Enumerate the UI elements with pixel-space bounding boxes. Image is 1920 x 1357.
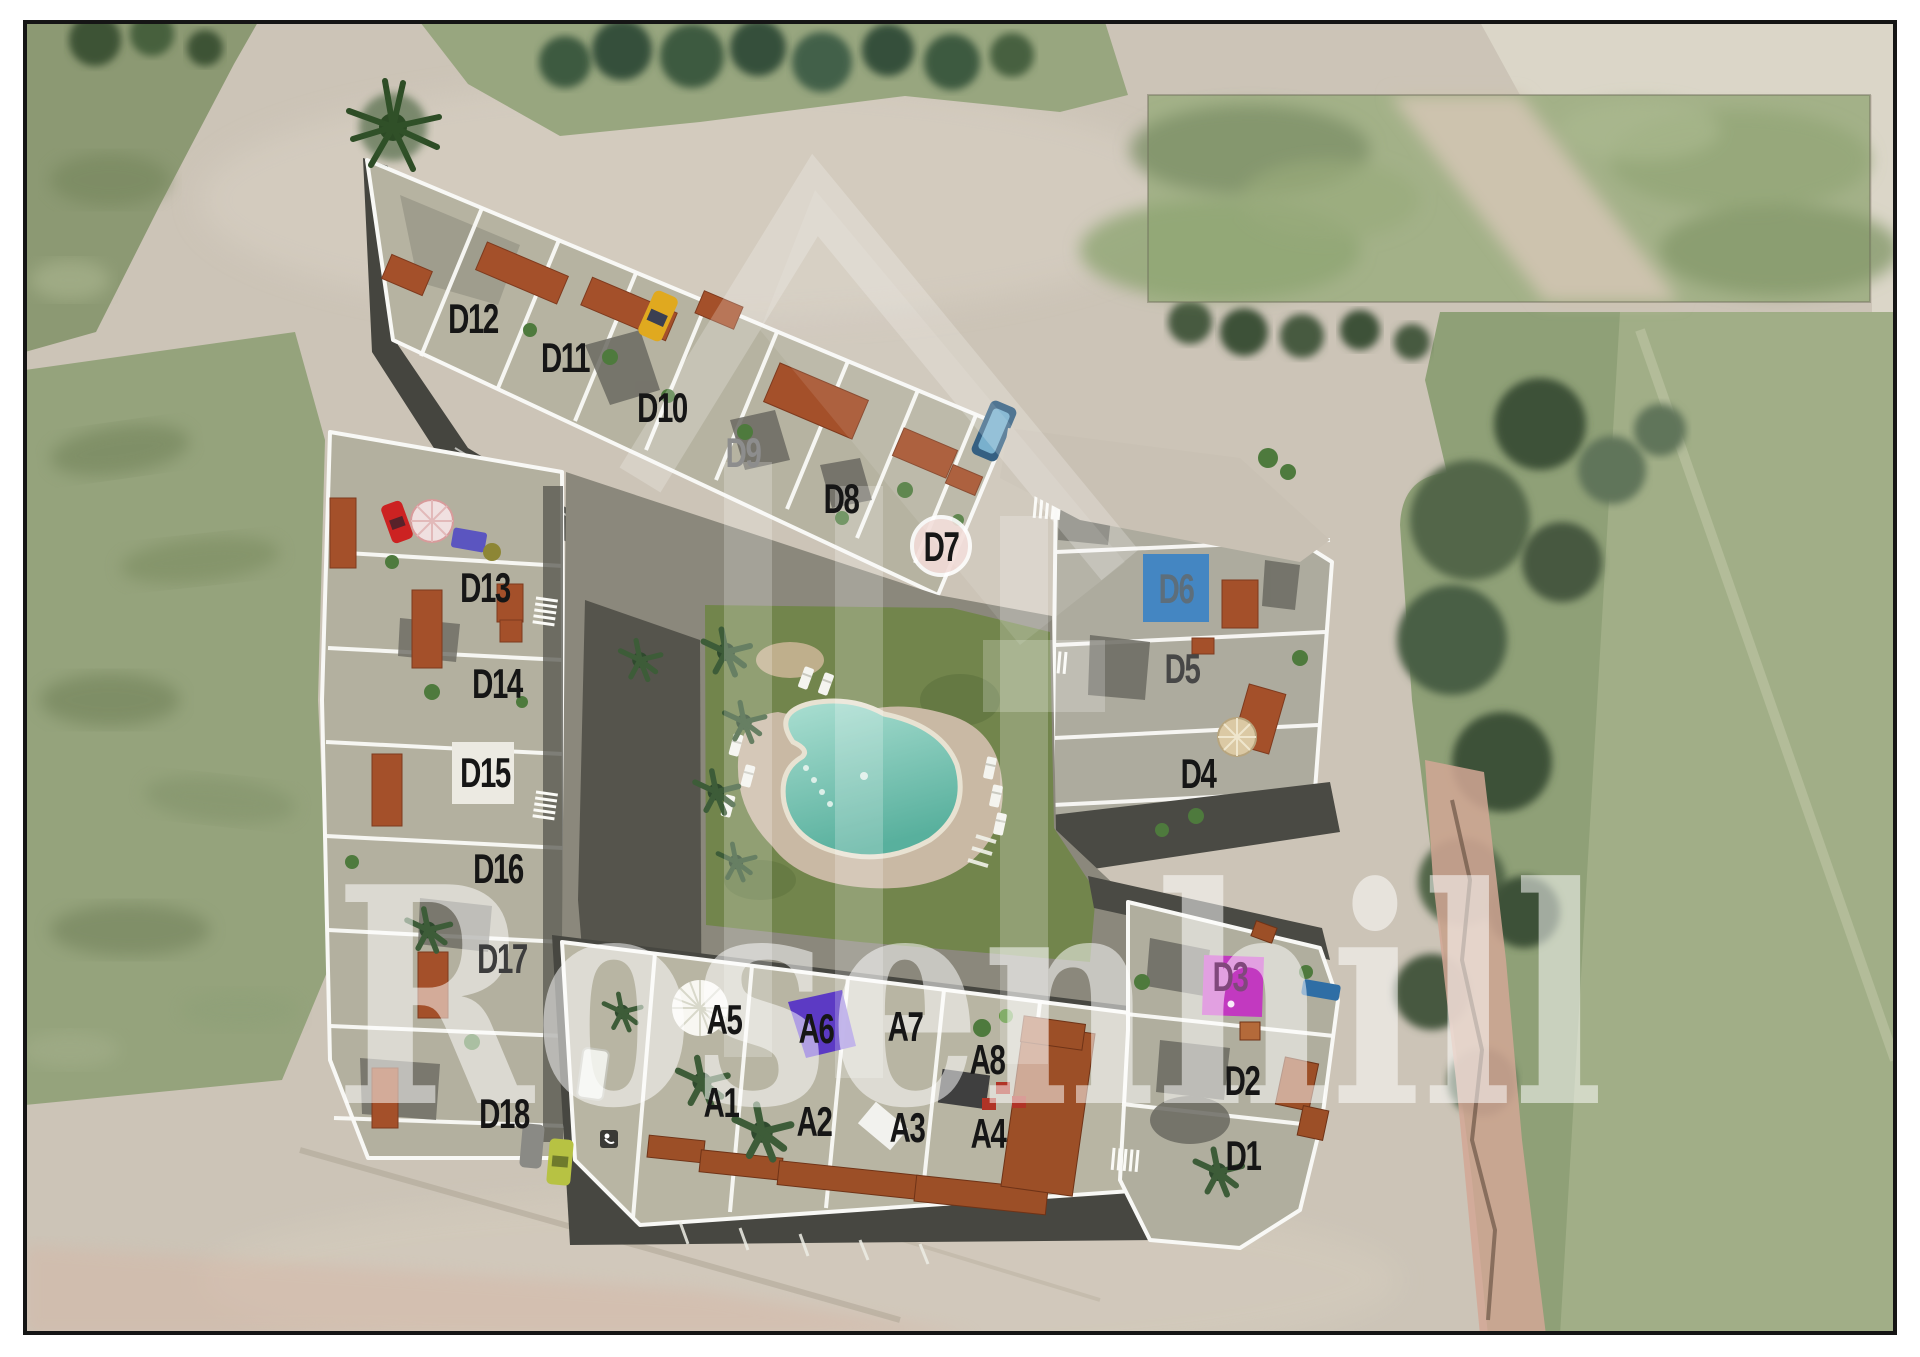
unit-label-A8: A8: [970, 1036, 1006, 1084]
green-field-left: [20, 332, 330, 1105]
unit-label-D5: D5: [1165, 645, 1201, 693]
unit-label-A6: A6: [799, 1005, 834, 1053]
unit-label-A2: A2: [797, 1098, 832, 1146]
unit-label-A4: A4: [971, 1110, 1007, 1158]
unit-label-D18: D18: [479, 1090, 530, 1138]
unit-label-A1: A1: [704, 1079, 740, 1127]
parasol-icon: [1218, 718, 1256, 756]
unit-label-A3: A3: [890, 1104, 925, 1152]
unit-label-D3: D3: [1213, 953, 1248, 1001]
unit-label-D9: D9: [726, 429, 761, 477]
unit-label-D16: D16: [473, 845, 523, 893]
unit-label-D4: D4: [1181, 750, 1217, 798]
umbrella-icon: [411, 500, 453, 542]
unit-label-D12: D12: [448, 295, 498, 343]
unit-label-A5: A5: [707, 996, 743, 1044]
unit-label-D10: D10: [637, 384, 687, 432]
unit-label-D2: D2: [1225, 1057, 1260, 1105]
pasted-patch: [1080, 95, 1900, 302]
unit-label-D1: D1: [1226, 1132, 1262, 1180]
unit-label-A7: A7: [888, 1003, 923, 1051]
unit-label-D11: D11: [541, 334, 590, 382]
round-table: [483, 543, 501, 561]
unit-label-D14: D14: [472, 660, 523, 708]
unit-label-D8: D8: [824, 475, 860, 523]
unit-label-D13: D13: [460, 564, 510, 612]
unit-label-D7: D7: [924, 523, 959, 571]
unit-label-D15: D15: [460, 749, 511, 797]
unit-label-D17: D17: [477, 935, 527, 983]
unit-label-D6: D6: [1159, 565, 1194, 613]
site-plan-image: Rosenhill D12D11D10D9D8D7D6D5D4D13D14D15…: [0, 0, 1920, 1357]
site-plan-page: Rosenhill D12D11D10D9D8D7D6D5D4D13D14D15…: [0, 0, 1920, 1357]
